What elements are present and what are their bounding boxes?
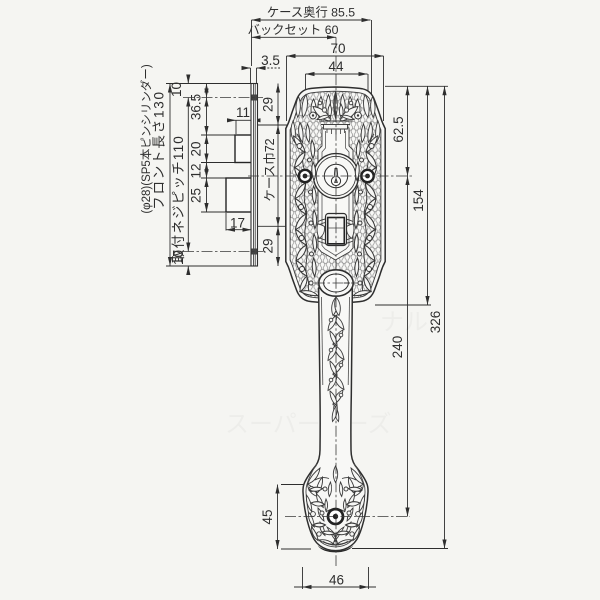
svg-text:29: 29: [261, 97, 276, 112]
svg-text:スーパーリーズ: スーパーリーズ: [225, 411, 392, 438]
svg-text:240: 240: [390, 336, 405, 359]
svg-text:ケース奥行 85.5: ケース奥行 85.5: [267, 6, 355, 20]
svg-text:20: 20: [189, 141, 204, 156]
svg-text:フロント長さ130: フロント長さ130: [152, 90, 167, 210]
svg-text:46: 46: [329, 573, 344, 588]
svg-text:70: 70: [330, 41, 345, 56]
svg-text:17: 17: [230, 216, 245, 231]
svg-text:ナル: ナル: [380, 309, 428, 336]
svg-text:11: 11: [236, 105, 250, 120]
svg-text:ケース巾72: ケース巾72: [263, 138, 277, 201]
svg-text:12: 12: [189, 163, 204, 178]
svg-text:25: 25: [189, 188, 204, 203]
svg-text:10: 10: [171, 250, 186, 265]
svg-text:3.5: 3.5: [261, 53, 280, 68]
svg-text:バックセット 60: バックセット 60: [248, 23, 339, 37]
svg-text:62.5: 62.5: [391, 116, 406, 142]
svg-text:取付ネジピッチ110: 取付ネジピッチ110: [171, 135, 186, 263]
svg-text:45: 45: [260, 509, 275, 524]
svg-text:154: 154: [411, 189, 426, 212]
svg-text:10: 10: [169, 82, 184, 97]
svg-text:326: 326: [428, 311, 443, 334]
